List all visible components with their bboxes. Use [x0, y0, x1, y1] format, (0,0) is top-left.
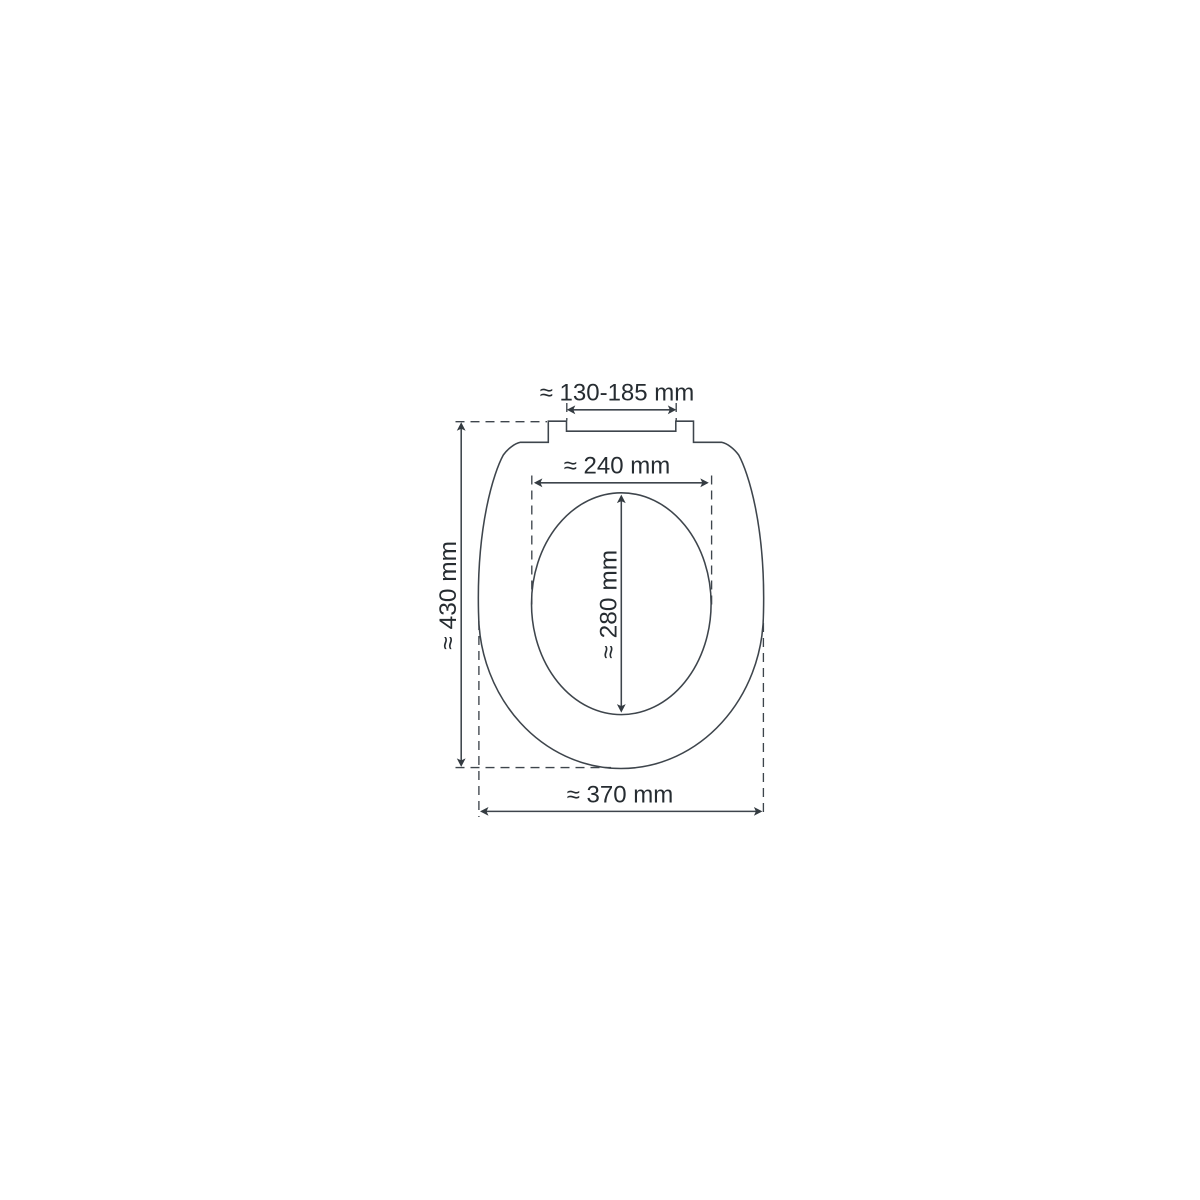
svg-text:≈ 130-185 mm: ≈ 130-185 mm [540, 380, 695, 407]
svg-text:≈ 370 mm: ≈ 370 mm [567, 782, 674, 809]
svg-text:≈ 430 mm: ≈ 430 mm [435, 541, 462, 650]
svg-text:≈ 280 mm: ≈ 280 mm [595, 550, 622, 659]
svg-text:≈ 240 mm: ≈ 240 mm [564, 453, 671, 480]
